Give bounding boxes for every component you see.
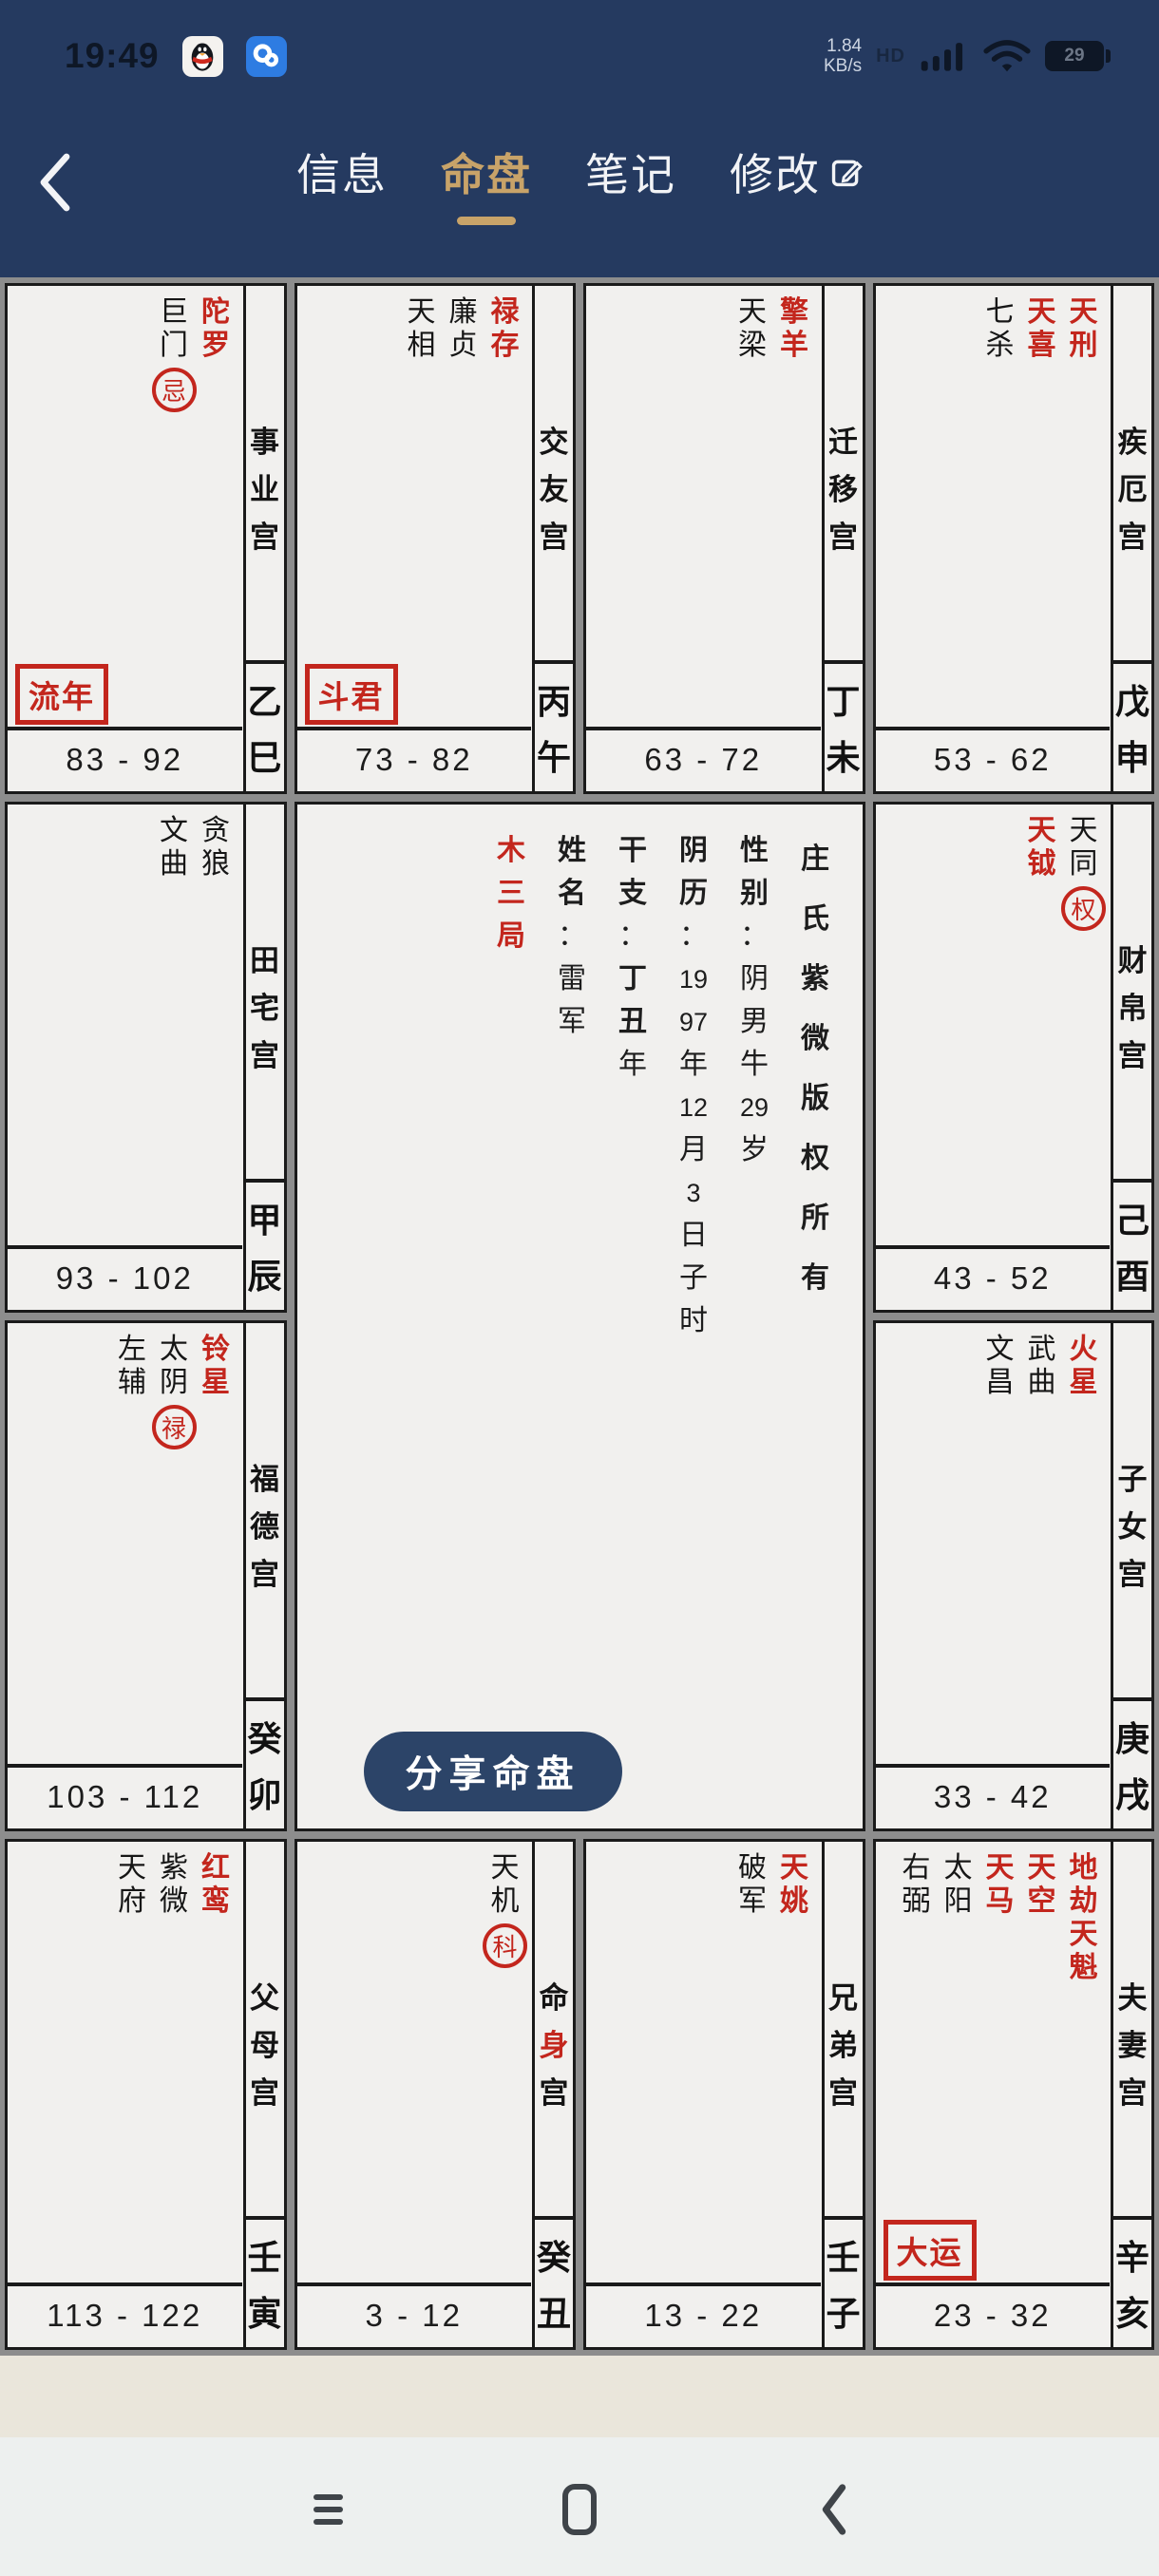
- age-range: 33 - 42: [876, 1779, 1111, 1815]
- info-col-name: 姓名：雷军: [550, 829, 595, 1342]
- star-文昌: 文昌: [985, 1333, 1015, 1399]
- tab-info-label: 信息: [296, 141, 388, 203]
- star-天姚: 天姚: [780, 1851, 809, 1918]
- star-地劫天魁: 地劫天魁: [1069, 1851, 1098, 1984]
- palace-pillar: 迁移宫丁未: [822, 286, 863, 791]
- tab-info[interactable]: 信息: [296, 141, 388, 225]
- stem-branch: 戊申: [1113, 673, 1151, 786]
- hua-禄: 禄: [152, 1405, 197, 1449]
- age-range: 63 - 72: [586, 742, 821, 778]
- age-range: 103 - 112: [8, 1779, 242, 1815]
- info-col-lunar-date: 阴历：1997年12月3日子时: [672, 829, 716, 1342]
- star-area: 天机科: [301, 1851, 521, 1968]
- star-破军: 破军: [738, 1851, 768, 1918]
- palace-name: 迁移宫: [825, 419, 863, 561]
- star-area: 文昌武曲火星: [880, 1333, 1099, 1399]
- pillar-divider: [535, 660, 573, 664]
- back-button[interactable]: [27, 144, 84, 220]
- tab-chart[interactable]: 命盘: [441, 141, 532, 225]
- palace-name: 兄弟宫: [825, 1975, 863, 2117]
- star-太阴: 太阴禄: [160, 1333, 189, 1449]
- edit-pencil-icon: [830, 156, 863, 188]
- badge-大运: 大运: [883, 2220, 977, 2281]
- ziwei-chart-grid: 木三局姓名：雷军干支：丁丑年阴历：1997年12月3日子时性别：阴男牛29岁庄氏…: [0, 277, 1159, 2356]
- star-禄存: 禄存: [490, 295, 520, 362]
- star-右弼: 右弼: [902, 1851, 931, 1984]
- star-天空: 天空: [1027, 1851, 1056, 1984]
- star-area: 破军天姚: [590, 1851, 809, 1918]
- palace-cell-health[interactable]: 七杀天喜天刑疾厄宫戊申53 - 62: [873, 283, 1155, 794]
- star-天府: 天府: [118, 1851, 147, 1918]
- status-right: 1.84 KB/s HD 29: [824, 36, 1104, 76]
- palace-cell-parents[interactable]: 天府紫微红鸾父母宫壬寅113 - 122: [5, 1839, 287, 2350]
- palace-pillar: 交友宫丙午: [532, 286, 573, 791]
- stem-branch: 丁未: [825, 673, 863, 786]
- palace-cell-career[interactable]: 巨门忌陀罗事业宫乙巳流年83 - 92: [5, 283, 287, 794]
- star-巨门: 巨门忌: [160, 295, 189, 412]
- speed-value: 1.84: [824, 36, 862, 56]
- palace-name: 田宅宫: [246, 938, 284, 1080]
- palace-name: 父母宫: [246, 1975, 284, 2117]
- palace-name: 夫妻宫: [1113, 1975, 1151, 2117]
- pillar-divider: [246, 660, 284, 664]
- palace-cell-children[interactable]: 文昌武曲火星子女宫庚戌33 - 42: [873, 1320, 1155, 1831]
- palace-cell-wealth[interactable]: 天钺天同权财帛宫己酉43 - 52: [873, 802, 1155, 1313]
- info-col-bureau: 木三局: [489, 829, 534, 1342]
- tab-edit[interactable]: 修改: [730, 141, 863, 225]
- star-天梁: 天梁: [738, 295, 768, 362]
- pillar-divider: [1113, 1697, 1151, 1701]
- tab-notes-label: 笔记: [585, 141, 676, 203]
- star-紫微: 紫微: [160, 1851, 189, 1918]
- age-divider-line: [876, 1245, 1111, 1249]
- tab-notes[interactable]: 笔记: [585, 141, 676, 225]
- pillar-divider: [246, 1697, 284, 1701]
- pillar-divider: [1113, 660, 1151, 664]
- info-col-gender: 性别：阴男牛29岁: [732, 829, 777, 1342]
- hua-科: 科: [483, 1923, 527, 1968]
- palace-name: 财帛宫: [1113, 938, 1151, 1080]
- age-divider-line: [586, 727, 821, 730]
- clock: 19:49: [65, 36, 160, 76]
- pillar-divider: [246, 2216, 284, 2220]
- star-天喜: 天喜: [1027, 295, 1056, 362]
- star-廉贞: 廉贞: [448, 295, 478, 362]
- palace-pillar: 命身宫癸丑: [532, 1842, 573, 2347]
- star-铃星: 铃星: [201, 1333, 231, 1449]
- stem-branch: 乙巳: [246, 673, 284, 786]
- palace-cell-fortune[interactable]: 左辅太阴禄铃星福德宫癸卯103 - 112: [5, 1320, 287, 1831]
- hua-忌: 忌: [152, 368, 197, 412]
- pillar-divider: [246, 1179, 284, 1183]
- stem-branch: 癸卯: [246, 1711, 284, 1823]
- star-贪狼: 贪狼: [201, 814, 231, 881]
- palace-cell-spouse[interactable]: 右弼太阳天马天空地劫天魁夫妻宫辛亥大运23 - 32: [873, 1839, 1155, 2350]
- star-area: 天府紫微红鸾: [11, 1851, 231, 1918]
- age-range: 13 - 22: [586, 2298, 821, 2334]
- stem-branch: 辛亥: [1113, 2229, 1151, 2341]
- stem-branch: 壬子: [825, 2229, 863, 2341]
- stem-branch: 丙午: [535, 673, 573, 786]
- age-divider-line: [8, 1764, 242, 1768]
- star-area: 左辅太阴禄铃星: [11, 1333, 231, 1449]
- palace-name: 命身宫: [535, 1975, 573, 2117]
- age-range: 93 - 102: [8, 1260, 242, 1297]
- badge-流年: 流年: [15, 664, 108, 725]
- star-红鸾: 红鸾: [201, 1851, 231, 1918]
- stem-branch: 庚戌: [1113, 1711, 1151, 1823]
- hua-权: 权: [1061, 886, 1106, 931]
- star-天同: 天同权: [1069, 814, 1098, 931]
- nav-bar: 信息 命盘 笔记 修改: [0, 106, 1159, 277]
- star-火星: 火星: [1069, 1333, 1098, 1399]
- back-icon[interactable]: [806, 2483, 863, 2536]
- speed-unit: KB/s: [824, 56, 862, 76]
- share-chart-button[interactable]: 分享命盘: [364, 1732, 622, 1811]
- status-bar: 19:49 1.84: [0, 0, 1159, 106]
- palace-cell-friends[interactable]: 天相廉贞禄存交友宫丙午斗君73 - 82: [294, 283, 577, 794]
- palace-pillar: 夫妻宫辛亥: [1111, 1842, 1151, 2347]
- pillar-divider: [1113, 2216, 1151, 2220]
- age-divider-line: [8, 727, 242, 730]
- signal-icon: [920, 39, 969, 73]
- star-area: 右弼太阳天马天空地劫天魁: [880, 1851, 1099, 1984]
- star-左辅: 左辅: [118, 1333, 147, 1449]
- star-七杀: 七杀: [985, 295, 1015, 362]
- star-太阳: 太阳: [943, 1851, 973, 1984]
- age-divider-line: [876, 727, 1111, 730]
- palace-pillar: 财帛宫己酉: [1111, 805, 1151, 1310]
- network-speed: 1.84 KB/s: [824, 36, 862, 76]
- star-天钺: 天钺: [1027, 814, 1056, 931]
- palace-name: 交友宫: [535, 419, 573, 561]
- wifi-icon: [983, 38, 1031, 74]
- star-area: 天钺天同权: [880, 814, 1099, 931]
- palace-pillar: 父母宫壬寅: [243, 1842, 284, 2347]
- center-info-cell: 木三局姓名：雷军干支：丁丑年阴历：1997年12月3日子时性别：阴男牛29岁庄氏…: [294, 802, 865, 1831]
- star-武曲: 武曲: [1027, 1333, 1056, 1399]
- age-range: 3 - 12: [297, 2298, 532, 2334]
- pillar-divider: [825, 2216, 863, 2220]
- info-col-copyright: 庄氏紫微版权所有: [793, 829, 838, 1342]
- palace-pillar: 事业宫乙巳: [243, 286, 284, 791]
- star-文曲: 文曲: [160, 814, 189, 881]
- stem-branch: 壬寅: [246, 2229, 284, 2341]
- star-天马: 天马: [985, 1851, 1015, 1984]
- qq-icon: [182, 36, 223, 77]
- home-icon[interactable]: [551, 2483, 608, 2536]
- palace-pillar: 福德宫癸卯: [243, 1323, 284, 1828]
- stem-branch: 癸丑: [535, 2229, 573, 2341]
- palace-pillar: 疾厄宫戊申: [1111, 286, 1151, 791]
- person-info: 木三局姓名：雷军干支：丁丑年阴历：1997年12月3日子时性别：阴男牛29岁庄氏…: [489, 829, 838, 1342]
- palace-cell-siblings[interactable]: 破军天姚兄弟宫壬子13 - 22: [583, 1839, 865, 2350]
- bottom-strip: [0, 2356, 1159, 2437]
- star-area: 天梁擎羊: [590, 295, 809, 362]
- palace-cell-life-body[interactable]: 天机科命身宫癸丑3 - 12: [294, 1839, 577, 2350]
- age-range: 23 - 32: [876, 2298, 1111, 2334]
- weiyun-cloud-icon: [246, 36, 287, 77]
- age-range: 113 - 122: [8, 2298, 242, 2334]
- age-divider-line: [8, 2282, 242, 2286]
- age-range: 73 - 82: [297, 742, 532, 778]
- hd-icon: HD: [876, 46, 905, 67]
- battery-percent: 29: [1064, 46, 1084, 66]
- palace-name: 疾厄宫: [1113, 419, 1151, 561]
- pillar-divider: [825, 660, 863, 664]
- palace-pillar: 田宅宫甲辰: [243, 805, 284, 1310]
- palace-name: 福德宫: [246, 1456, 284, 1599]
- tab-strip: 信息 命盘 笔记 修改: [0, 106, 1159, 225]
- star-天机: 天机科: [490, 1851, 520, 1968]
- app-screen: 19:49 1.84: [0, 0, 1159, 2576]
- palace-pillar: 子女宫庚戌: [1111, 1323, 1151, 1828]
- badge-斗君: 斗君: [305, 664, 398, 725]
- age-divider-line: [586, 2282, 821, 2286]
- palace-cell-travel[interactable]: 天梁擎羊迁移宫丁未63 - 72: [583, 283, 865, 794]
- tab-edit-label: 修改: [730, 141, 821, 203]
- header: 19:49 1.84: [0, 0, 1159, 277]
- star-天刑: 天刑: [1069, 295, 1098, 362]
- chevron-left-icon: [36, 151, 74, 214]
- palace-cell-property[interactable]: 文曲贪狼田宅宫甲辰93 - 102: [5, 802, 287, 1313]
- pillar-divider: [1113, 1179, 1151, 1183]
- star-area: 天相廉贞禄存: [301, 295, 521, 362]
- age-divider-line: [876, 2282, 1111, 2286]
- age-divider-line: [297, 2282, 532, 2286]
- age-divider-line: [876, 1764, 1111, 1768]
- age-range: 53 - 62: [876, 742, 1111, 778]
- age-range: 43 - 52: [876, 1260, 1111, 1297]
- tab-chart-label: 命盘: [441, 141, 532, 203]
- palace-name: 子女宫: [1113, 1456, 1151, 1599]
- battery-icon: 29: [1045, 41, 1104, 71]
- stem-branch: 己酉: [1113, 1192, 1151, 1304]
- star-area: 文曲贪狼: [11, 814, 231, 881]
- pillar-divider: [535, 2216, 573, 2220]
- star-擎羊: 擎羊: [780, 295, 809, 362]
- age-range: 83 - 92: [8, 742, 242, 778]
- star-area: 七杀天喜天刑: [880, 295, 1099, 362]
- recent-apps-icon[interactable]: [299, 2483, 356, 2536]
- age-divider-line: [297, 727, 532, 730]
- star-陀罗: 陀罗: [201, 295, 231, 412]
- stem-branch: 甲辰: [246, 1192, 284, 1304]
- age-divider-line: [8, 1245, 242, 1249]
- palace-name: 事业宫: [246, 419, 284, 561]
- info-col-ganzhi: 干支：丁丑年: [611, 829, 655, 1342]
- palace-pillar: 兄弟宫壬子: [822, 1842, 863, 2347]
- star-area: 巨门忌陀罗: [11, 295, 231, 412]
- active-tab-underline: [457, 217, 516, 225]
- star-天相: 天相: [407, 295, 436, 362]
